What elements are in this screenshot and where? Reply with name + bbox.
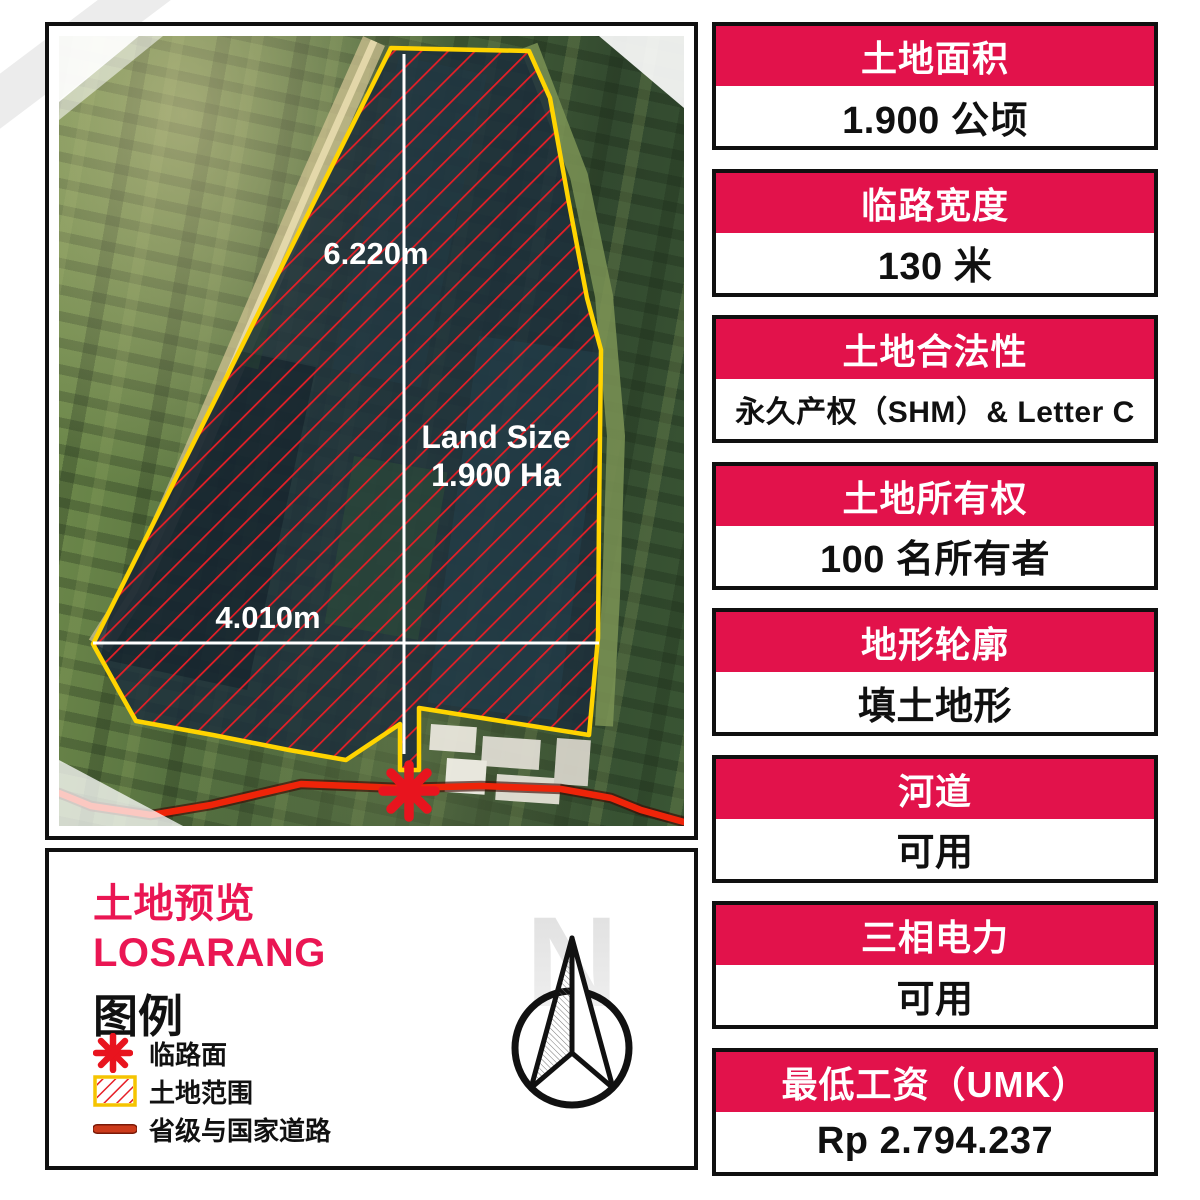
card-value: 可用: [716, 965, 1154, 1025]
card-header: 河道: [716, 759, 1154, 819]
vertical-dimension-label: 6.220m: [323, 236, 428, 271]
legend-items: 临路面 土地范围: [93, 1034, 331, 1148]
card-value: 填土地形: [716, 672, 1154, 732]
road-frontage-marker: [383, 765, 435, 817]
legend-item-label: 土地范围: [149, 1073, 253, 1110]
card-header: 地形轮廓: [716, 612, 1154, 672]
card-header: 临路宽度: [716, 173, 1154, 233]
compass-north-icon: N: [467, 888, 677, 1138]
provincial-national-road-line-icon: [93, 1122, 149, 1136]
card-minimum-wage: 最低工资（UMK） Rp 2.794.237: [712, 1048, 1158, 1176]
parcel-hatch: [93, 48, 601, 770]
card-value: 100 名所有者: [716, 526, 1154, 586]
map-panel: 6.220m 4.010m Land Size 1.900 Ha: [45, 22, 698, 840]
map-title-cn: 土地预览: [93, 880, 326, 929]
land-size-label-line1: Land Size: [421, 419, 570, 455]
card-value: Rp 2.794.237: [716, 1112, 1154, 1172]
map-title: 土地预览 LOSARANG: [93, 880, 326, 978]
card-three-phase-power: 三相电力 可用: [712, 901, 1158, 1029]
satellite-map: 6.220m 4.010m Land Size 1.900 Ha: [59, 36, 684, 826]
card-land-legality: 土地合法性 永久产权（SHM）& Letter C: [712, 315, 1158, 443]
card-land-area: 土地面积 1.900 公顷: [712, 22, 1158, 150]
map-annotations: 6.220m 4.010m Land Size 1.900 Ha: [59, 36, 684, 826]
card-header: 三相电力: [716, 905, 1154, 965]
card-terrain-contour: 地形轮廓 填土地形: [712, 608, 1158, 736]
map-title-location: LOSARANG: [93, 929, 326, 978]
card-header: 最低工资（UMK）: [716, 1052, 1154, 1112]
card-river-channel: 河道 可用: [712, 755, 1158, 883]
card-land-ownership: 土地所有权 100 名所有者: [712, 462, 1158, 590]
card-header: 土地合法性: [716, 319, 1154, 379]
legend-item-label: 临路面: [149, 1035, 227, 1072]
card-road-frontage-width: 临路宽度 130 米: [712, 169, 1158, 297]
legend-panel: 土地预览 LOSARANG 图例 临路面: [45, 848, 698, 1170]
land-preview-poster: 6.220m 4.010m Land Size 1.900 Ha 土地预览 LO…: [0, 0, 1200, 1200]
info-cards: 土地面积 1.900 公顷 临路宽度 130 米 土地合法性 永久产权（SHM）…: [712, 22, 1158, 1194]
legend-item-roads: 省级与国家道路: [93, 1110, 331, 1148]
card-header: 土地所有权: [716, 466, 1154, 526]
land-size-label-line2: 1.900 Ha: [431, 457, 561, 493]
card-value: 永久产权（SHM）& Letter C: [716, 379, 1154, 439]
card-header: 土地面积: [716, 26, 1154, 86]
card-value: 可用: [716, 819, 1154, 879]
road-frontage-marker-icon: [93, 1033, 149, 1073]
legend-item-label: 省级与国家道路: [149, 1111, 331, 1148]
card-value: 1.900 公顷: [716, 86, 1154, 146]
land-extent-swatch-icon: [93, 1075, 149, 1107]
legend-item-road-frontage: 临路面: [93, 1034, 331, 1072]
card-value: 130 米: [716, 233, 1154, 293]
horizontal-dimension-label: 4.010m: [215, 600, 320, 635]
land-parcel: [93, 48, 608, 770]
legend-item-land-extent: 土地范围: [93, 1072, 331, 1110]
